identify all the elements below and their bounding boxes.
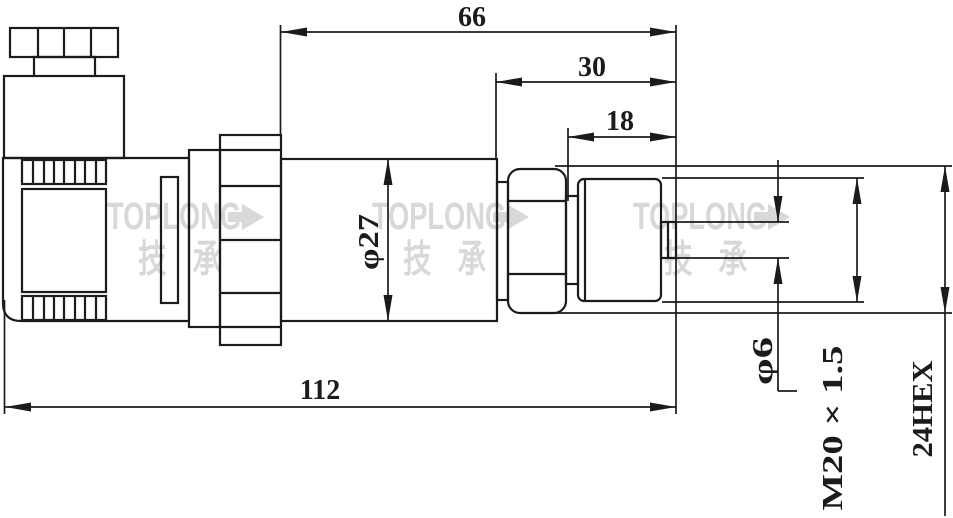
dim-label-body-diameter: φ27 (354, 214, 385, 270)
watermark-brand-text: TOPLONG (633, 196, 767, 238)
pressure-transmitter-drawing: TOPLONG 技 承 TOPLONG 技 承 TOPLONG 技 承 (0, 0, 953, 518)
dim-label-port-diameter: φ6 (748, 337, 779, 385)
dim-label-30: 30 (578, 52, 606, 83)
dim-label-66: 66 (458, 2, 486, 33)
dim-label-18: 18 (606, 106, 634, 137)
watermark-cjk-text: 技 承 (138, 239, 230, 281)
dim-label-hex-size: 24HEX (908, 361, 939, 458)
watermark-row: TOPLONG 技 承 TOPLONG 技 承 TOPLONG 技 承 (107, 196, 790, 281)
watermark-cjk-text: 技 承 (664, 239, 756, 281)
dim-label-112: 112 (300, 375, 340, 406)
engineering-drawing-canvas: TOPLONG 技 承 TOPLONG 技 承 TOPLONG 技 承 (0, 0, 953, 518)
dim-label-thread-spec: M20 × 1.5 (818, 346, 849, 511)
watermark-cjk-text: 技 承 (403, 239, 495, 281)
watermark-brand-text: TOPLONG (372, 196, 506, 238)
